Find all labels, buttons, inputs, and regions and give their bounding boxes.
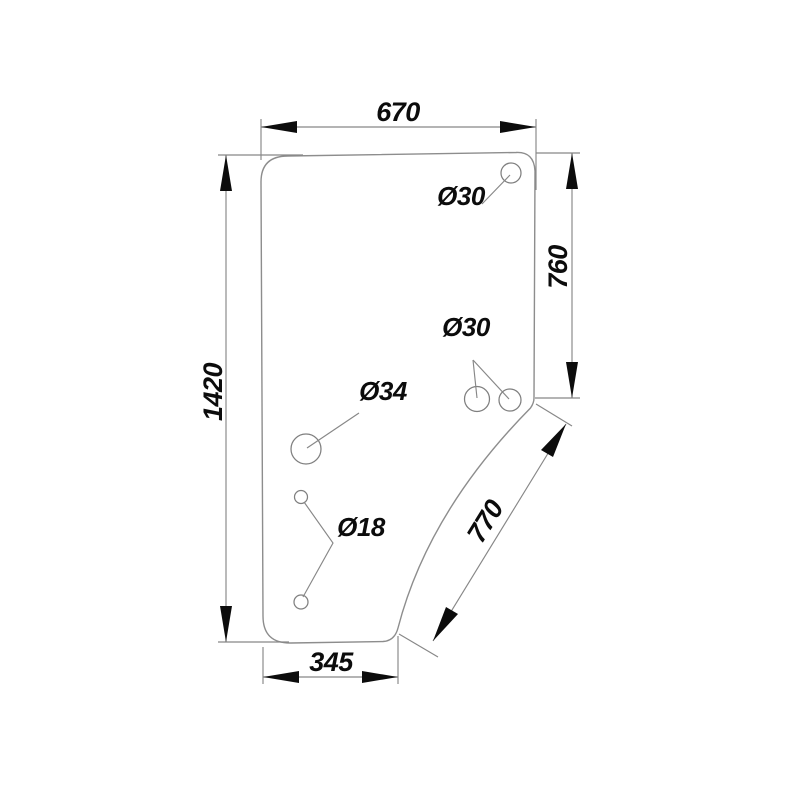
dimension-top-width: 670: [261, 97, 536, 190]
arrowhead-up: [220, 155, 232, 191]
hole-mid-right-left: [465, 387, 490, 412]
dimension-value-670: 670: [376, 97, 420, 127]
dimension-value-760: 760: [543, 245, 573, 289]
arrowhead-right: [362, 671, 398, 683]
drawing-canvas: 670 1420 760 770: [0, 0, 800, 800]
leader-hole-top-right: [482, 175, 510, 204]
arrowhead-down: [220, 606, 232, 642]
extension-line: [536, 404, 572, 426]
dimension-diagonal: 770: [399, 404, 572, 657]
technical-drawing: 670 1420 760 770: [0, 0, 800, 800]
hole-lower-left-lower: [294, 595, 308, 609]
hole-lower-left-upper: [295, 491, 308, 504]
arrowhead-left: [263, 671, 299, 683]
hole-label-mid-left: Ø34: [359, 376, 408, 406]
hole-label-lower-left-pair: Ø18: [337, 512, 386, 542]
leader-hole-lower-pair: [303, 502, 333, 597]
leader-hole-mid-left: [307, 413, 359, 448]
arrowhead-left: [261, 121, 297, 133]
arrowhead-lower: [433, 607, 458, 641]
leader-hole-mid-pair-right: [473, 360, 509, 399]
dimension-value-1420: 1420: [198, 362, 228, 421]
arrowhead-upper: [541, 424, 566, 457]
dimension-line: [433, 424, 566, 641]
hole-top-right: [501, 163, 521, 183]
dimension-left-height: 1420: [198, 155, 303, 642]
arrowhead-down: [566, 362, 578, 398]
arrowhead-right: [500, 121, 536, 133]
dimension-value-770: 770: [461, 494, 510, 547]
hole-label-top-right: Ø30: [437, 181, 486, 211]
extension-line: [399, 634, 438, 657]
dimension-value-345: 345: [309, 647, 354, 677]
leader-hole-mid-pair-left: [473, 360, 477, 398]
arrowhead-up: [566, 153, 578, 189]
hole-mid-left: [291, 434, 321, 464]
hole-label-mid-right-pair: Ø30: [442, 312, 491, 342]
dimension-right-height: 760: [535, 153, 580, 398]
